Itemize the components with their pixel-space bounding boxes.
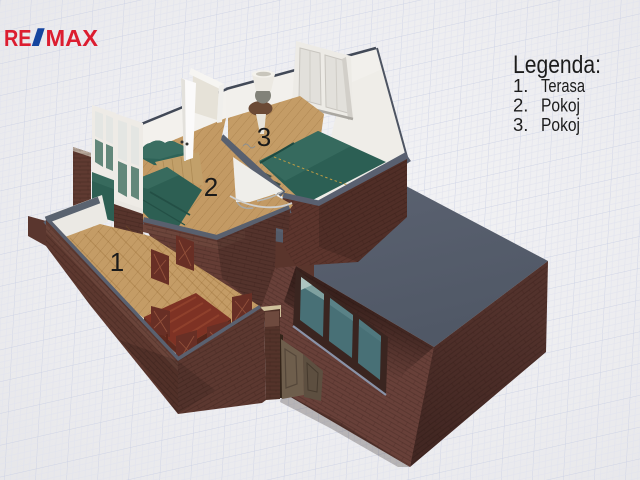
svg-text:RE: RE <box>4 25 32 51</box>
svg-text:Terasa: Terasa <box>541 75 586 96</box>
svg-text:Pokoj: Pokoj <box>541 95 580 116</box>
svg-text:3.: 3. <box>513 114 528 135</box>
svg-text:MAX: MAX <box>46 25 99 51</box>
svg-text:3: 3 <box>257 122 271 152</box>
svg-text:Pokoj: Pokoj <box>541 114 580 135</box>
svg-text:2: 2 <box>204 172 218 202</box>
svg-text:1: 1 <box>110 247 124 277</box>
svg-text:1.: 1. <box>513 75 528 96</box>
svg-text:2.: 2. <box>513 95 528 116</box>
